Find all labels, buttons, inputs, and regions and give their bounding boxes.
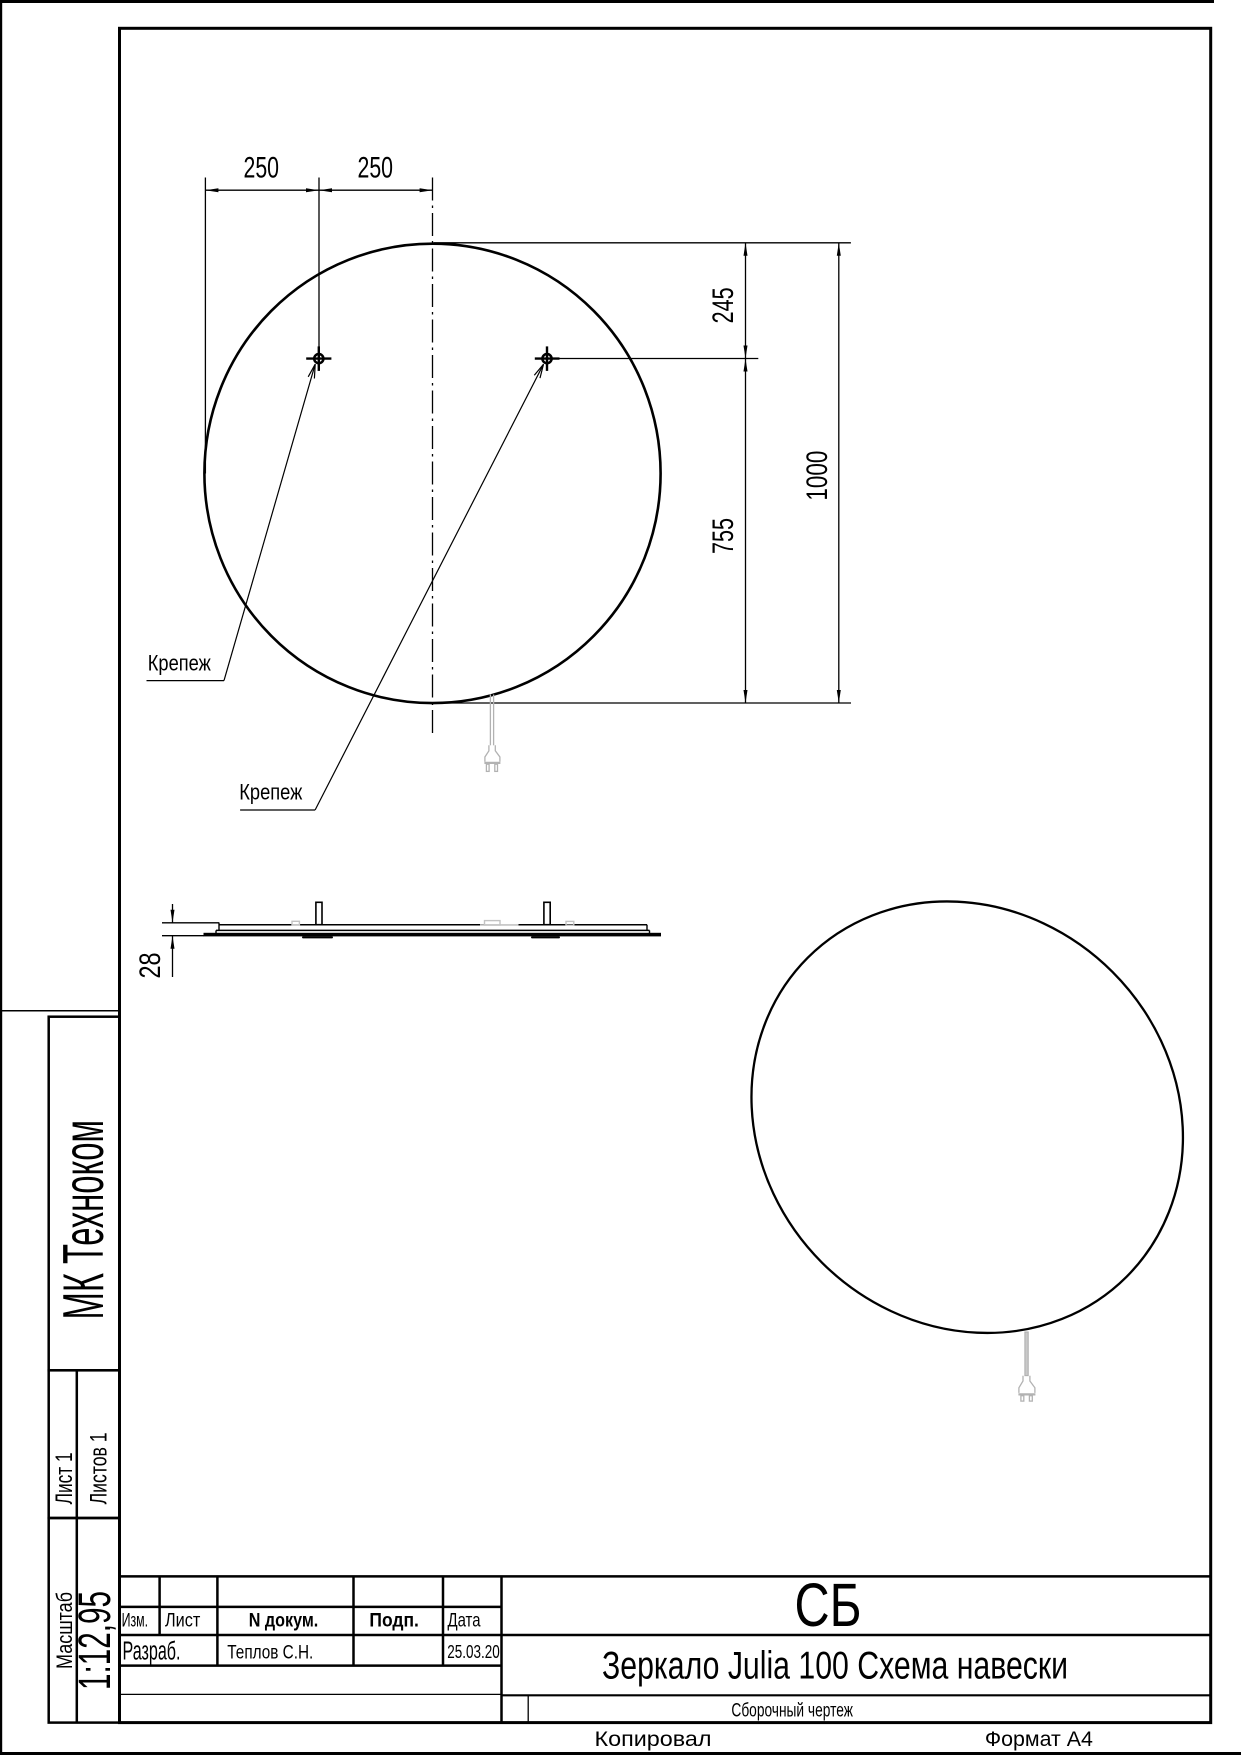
svg-text:Подп.: Подп. (369, 1609, 419, 1631)
svg-text:N докум.: N докум. (249, 1609, 318, 1631)
svg-text:Дата: Дата (448, 1609, 481, 1631)
svg-text:Лист 1: Лист 1 (51, 1452, 78, 1504)
svg-text:755: 755 (707, 518, 740, 554)
svg-text:245: 245 (707, 287, 740, 323)
svg-text:Разраб.: Разраб. (123, 1637, 181, 1665)
svg-text:СБ: СБ (795, 1571, 862, 1639)
svg-text:25.03.20: 25.03.20 (447, 1641, 500, 1662)
svg-text:МК Техноком: МК Техноком (52, 1120, 116, 1320)
svg-text:1:12,95: 1:12,95 (69, 1591, 120, 1690)
svg-text:Зеркало Julia 100 Схема навеск: Зеркало Julia 100 Схема навески (602, 1645, 1068, 1688)
svg-text:250: 250 (358, 151, 394, 184)
svg-text:28: 28 (134, 953, 167, 979)
svg-text:Крепеж: Крепеж (239, 780, 302, 805)
svg-text:Листов 1: Листов 1 (85, 1432, 112, 1504)
svg-text:Формат A4: Формат A4 (985, 1727, 1093, 1751)
svg-text:Изм.: Изм. (122, 1609, 148, 1631)
svg-text:Теплов С.Н.: Теплов С.Н. (227, 1642, 313, 1664)
svg-text:Крепеж: Крепеж (148, 651, 211, 676)
svg-text:250: 250 (244, 151, 280, 184)
svg-text:1000: 1000 (801, 451, 834, 501)
svg-text:Копировал: Копировал (595, 1727, 712, 1751)
svg-text:Лист: Лист (165, 1609, 200, 1631)
svg-text:Сборочный чертеж: Сборочный чертеж (731, 1700, 853, 1722)
